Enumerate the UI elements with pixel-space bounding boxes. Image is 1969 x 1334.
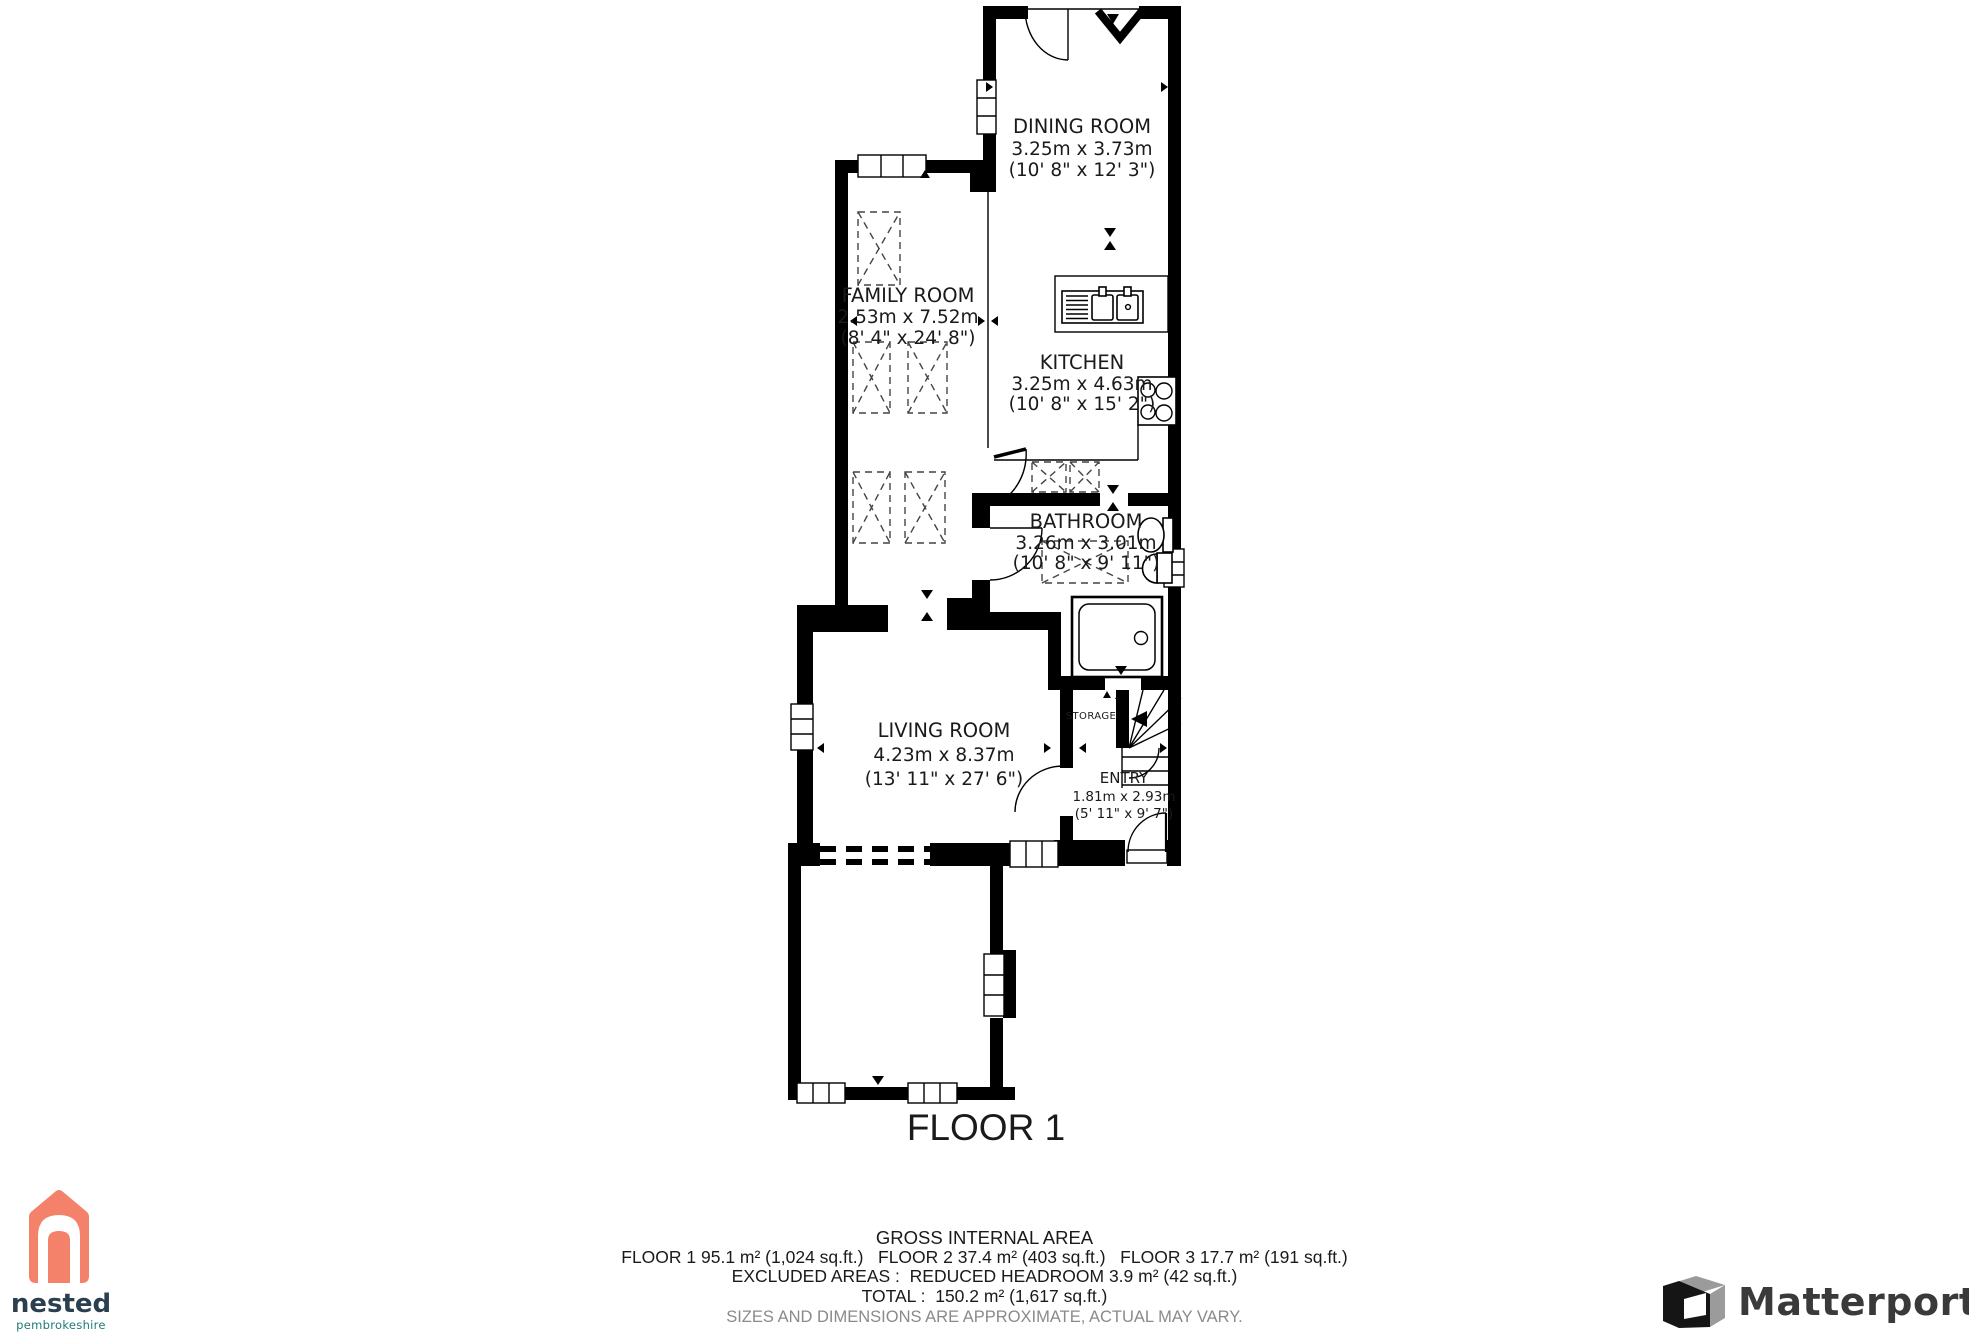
furniture-box [1032, 462, 1066, 492]
window-front-bottom-1 [797, 1083, 845, 1103]
svg-text:3.26m x 3.01m: 3.26m x 3.01m [1015, 533, 1156, 554]
kitchen-sink-counter [1055, 276, 1168, 332]
matterport-logo: Matterport [1658, 1272, 1969, 1332]
opening-dashed-living-front [820, 849, 930, 862]
window-family-top [858, 155, 926, 177]
floor-title: FLOOR 1 [907, 1107, 1065, 1148]
furniture-box [853, 472, 890, 543]
svg-text:3.25m x 4.63m: 3.25m x 4.63m [1011, 374, 1152, 395]
svg-text:KITCHEN: KITCHEN [1040, 351, 1125, 374]
furniture-box [905, 472, 945, 543]
area-summary-floors: FLOOR 1 95.1 m² (1,024 sq.ft.) FLOOR 2 3… [0, 1248, 1969, 1268]
svg-text:(10' 8" x 15' 2"): (10' 8" x 15' 2") [1009, 394, 1156, 415]
stair-direction-arrow [1131, 711, 1147, 727]
window-front-right [984, 954, 1004, 1016]
room-label-family: FAMILY ROOM 2.53m x 7.52m (8' 4" x 24' 8… [837, 284, 978, 349]
svg-text:2.53m x 7.52m: 2.53m x 7.52m [837, 307, 978, 328]
furniture-box [908, 342, 947, 413]
svg-text:BATHROOM: BATHROOM [1030, 510, 1143, 533]
room-label-bathroom: BATHROOM 3.26m x 3.01m (10' 8" x 9' 11") [1013, 510, 1160, 574]
window-living-left [791, 704, 813, 750]
nested-wordmark: nested [6, 1291, 116, 1317]
shower-icon [1072, 597, 1162, 677]
room-label-kitchen: KITCHEN 3.25m x 4.63m (10' 8" x 15' 2") [1009, 351, 1156, 415]
svg-text:(10' 8" x 12' 3"): (10' 8" x 12' 3") [1009, 160, 1156, 181]
room-label-storage: STORAGE [1066, 711, 1116, 722]
svg-text:(8' 4" x 24' 8"): (8' 4" x 24' 8") [841, 328, 976, 349]
svg-text:(13' 11" x 27' 6"): (13' 11" x 27' 6") [865, 769, 1024, 790]
room-label-entry: ENTRY 1.81m x 2.93m (5' 11" x 9' 7") [1073, 769, 1176, 822]
furniture-box [1070, 462, 1099, 492]
window-front-bottom-2 [908, 1083, 957, 1103]
svg-text:DINING ROOM: DINING ROOM [1013, 115, 1151, 138]
area-summary-heading: GROSS INTERNAL AREA [0, 1228, 1969, 1248]
svg-text:4.23m x 8.37m: 4.23m x 8.37m [873, 745, 1014, 766]
room-label-dining: DINING ROOM 3.25m x 3.73m (10' 8" x 12' … [1009, 115, 1156, 181]
floorplan-canvas: DINING ROOM 3.25m x 3.73m (10' 8" x 12' … [0, 0, 1969, 1334]
floorplan-page: { "document": { "title": "Floor plan - F… [0, 0, 1969, 1334]
svg-text:ENTRY: ENTRY [1100, 769, 1149, 787]
furniture-box [858, 212, 900, 285]
svg-text:(5' 11" x 9' 7"): (5' 11" x 9' 7") [1075, 806, 1173, 822]
nested-logo: nested pembrokeshire [6, 1184, 116, 1332]
furniture-box [853, 342, 890, 413]
svg-text:FAMILY ROOM: FAMILY ROOM [842, 284, 975, 307]
fixtures-layer [1055, 276, 1176, 677]
window-living-bottom [1010, 841, 1058, 867]
matterport-icon [1658, 1272, 1728, 1332]
svg-text:(10' 8" x 9' 11"): (10' 8" x 9' 11") [1013, 553, 1160, 574]
nested-house-icon [6, 1184, 116, 1284]
matterport-wordmark: Matterport [1738, 1280, 1969, 1324]
room-label-living: LIVING ROOM 4.23m x 8.37m (13' 11" x 27'… [865, 719, 1024, 790]
svg-text:3.25m x 3.73m: 3.25m x 3.73m [1011, 139, 1152, 160]
svg-text:1.81m x 2.93m: 1.81m x 2.93m [1073, 789, 1176, 805]
entrance-chevron [1098, 11, 1142, 38]
svg-text:LIVING ROOM: LIVING ROOM [878, 719, 1011, 742]
door-dining-top [1025, 9, 1068, 60]
nested-region-label: pembrokeshire [6, 1318, 116, 1332]
